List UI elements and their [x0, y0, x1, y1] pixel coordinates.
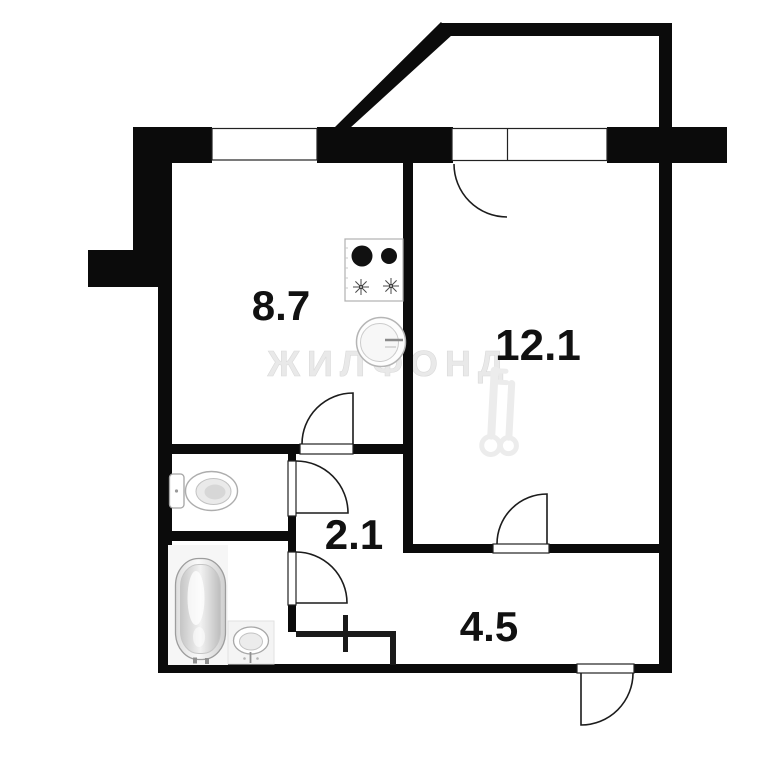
stove-body: [345, 239, 403, 301]
floor-plan-image: ЖИЛФОНД: [0, 0, 778, 768]
floor-plan: ЖИЛФОНД: [0, 0, 778, 768]
room-label-corridor: 4.5: [460, 603, 518, 650]
wall-wc-east-a: [288, 454, 296, 461]
bathroom-sink-handle-left: [243, 657, 246, 660]
bathroom-door-swing: [296, 552, 347, 603]
wall-bottom-left: [158, 664, 577, 673]
entrance-door-jamb: [577, 664, 634, 673]
room-door-swing: [497, 494, 547, 544]
openings: [212, 129, 634, 674]
toilet-flush-button: [175, 489, 178, 492]
room-labels: 8.7 12.1 2.1 4.5: [252, 282, 581, 650]
wall-top-middle: [317, 127, 453, 163]
kitchen-door-jamb: [300, 444, 353, 454]
room-label-kitchen: 8.7: [252, 282, 310, 329]
room-door-jamb: [493, 544, 549, 553]
bathtub-highlight-2: [193, 627, 205, 647]
wall-right-outer: [659, 23, 672, 673]
stove-burner-large: [352, 246, 373, 267]
wall-balcony-diagonal: [334, 22, 452, 128]
wall-wc-east-c: [288, 605, 296, 632]
stove: [345, 239, 403, 301]
wc-door-swing: [296, 461, 348, 513]
kitchen-sink-bowl: [361, 324, 399, 362]
room-label-hallway: 2.1: [325, 511, 383, 558]
bathroom-door-jamb: [288, 552, 296, 605]
room-label-living-room: 12.1: [495, 321, 581, 370]
balcony-door-swing: [454, 164, 507, 217]
toilet: [170, 472, 238, 511]
bathtub-drain-mark-1: [193, 658, 197, 664]
balcony-window-door-unit: [452, 129, 607, 161]
wall-balcony-top: [440, 23, 668, 36]
wall-left-upper: [133, 127, 172, 250]
kitchen-door-swing: [302, 393, 353, 444]
wall-left-protrusion: [88, 250, 172, 287]
bathroom-sink-bowl: [240, 633, 263, 650]
wall-wc-east-b: [288, 516, 296, 552]
bathtub-drain-mark-2: [205, 658, 209, 664]
wall-kitchen-room-divider: [403, 163, 413, 553]
partition-lines: [296, 615, 396, 665]
closet-right-line: [390, 631, 396, 665]
wall-wc-bath-divider: [171, 531, 288, 541]
wc-door-jamb: [288, 461, 296, 516]
bathroom-sink: [228, 621, 274, 664]
kitchen-window: [212, 129, 317, 161]
wall-room-corridor-b: [549, 544, 659, 553]
wall-bottom-right: [634, 664, 672, 673]
bathtub-highlight: [188, 571, 205, 625]
kitchen-sink: [357, 318, 406, 367]
bathroom-sink-handle-right: [256, 657, 259, 660]
stove-burner-small: [381, 248, 397, 264]
duct-riser-cross: [343, 615, 348, 652]
wall-room-corridor-a: [403, 544, 493, 553]
toilet-bowl-inner: [205, 485, 226, 500]
entrance-door-swing: [581, 673, 633, 725]
wall-kitchen-south-a: [171, 444, 300, 454]
bathtub: [168, 545, 228, 665]
